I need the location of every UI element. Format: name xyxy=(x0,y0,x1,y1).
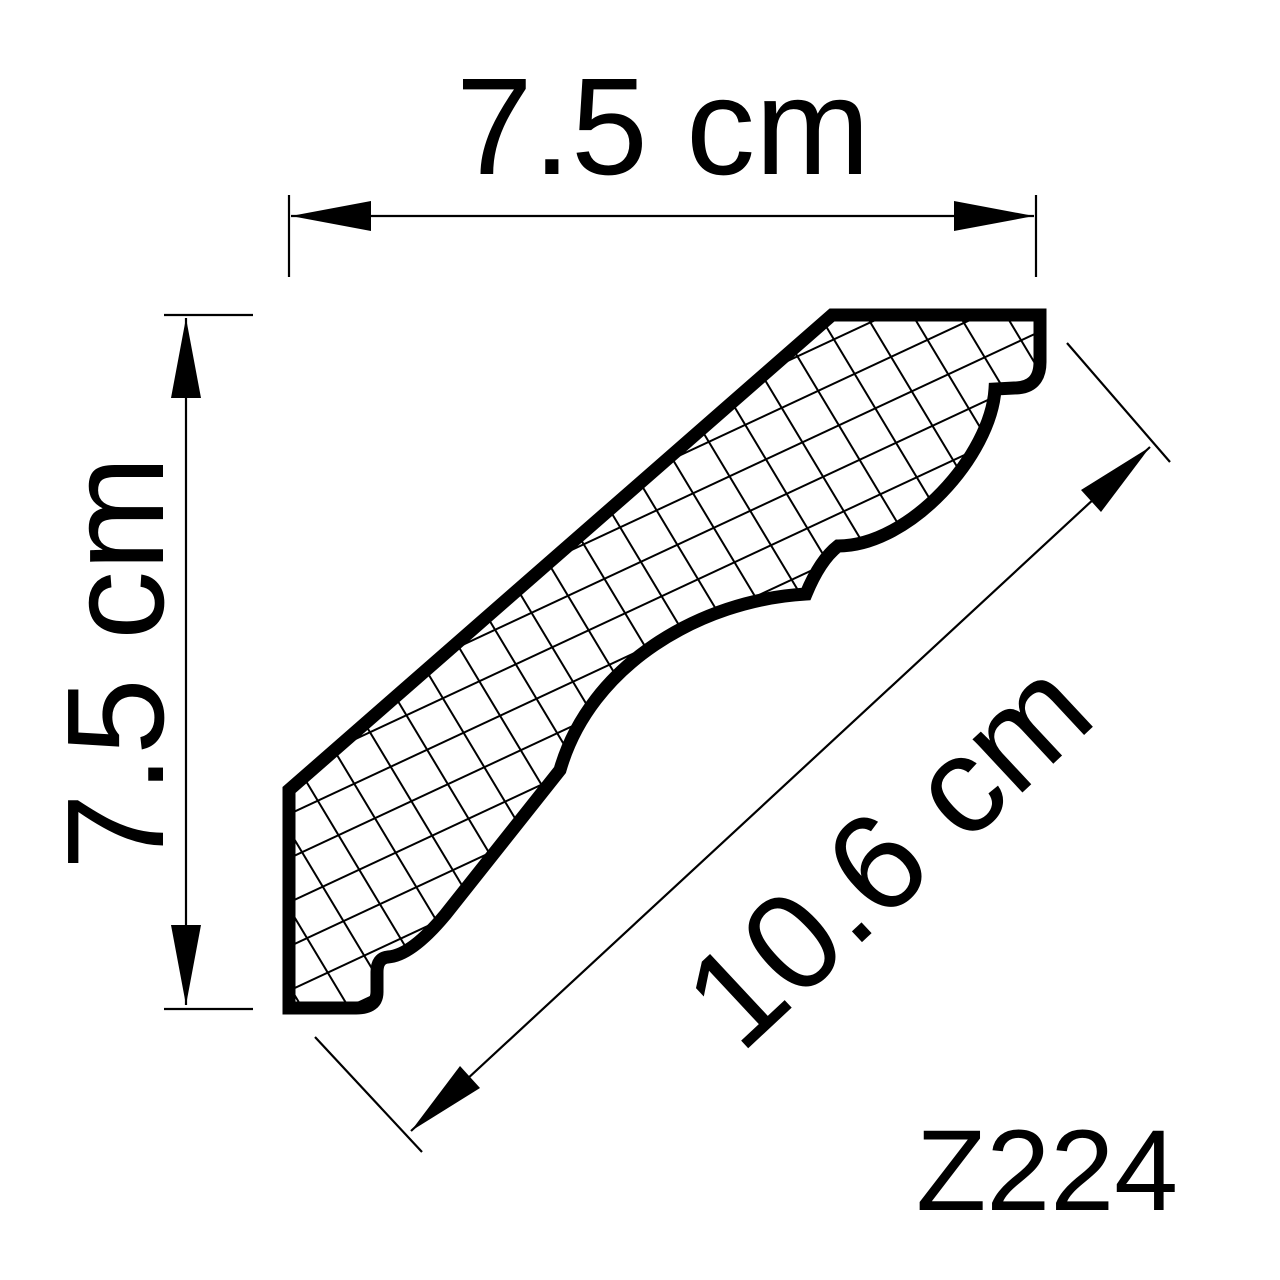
technical-drawing-canvas: 7.5 cm 7.5 cm 10.6 cm Z224 xyxy=(0,0,1280,1280)
molding-profile-diagram: 7.5 cm 7.5 cm 10.6 cm Z224 xyxy=(0,0,1280,1280)
left-height-dimension: 7.5 cm xyxy=(39,315,253,1009)
arrowhead-up xyxy=(171,318,201,398)
arrowhead-down xyxy=(171,925,201,1005)
witness-line-lower xyxy=(315,1037,422,1152)
arrowhead-left xyxy=(291,201,371,231)
left-height-label: 7.5 cm xyxy=(39,456,193,870)
arrowhead-right xyxy=(954,201,1034,231)
product-code-label: Z224 xyxy=(916,1107,1178,1235)
diagonal-face-label: 10.6 cm xyxy=(656,630,1120,1077)
top-width-dimension: 7.5 cm xyxy=(289,50,1036,277)
witness-line-upper xyxy=(1067,343,1170,462)
top-width-label: 7.5 cm xyxy=(456,50,870,204)
